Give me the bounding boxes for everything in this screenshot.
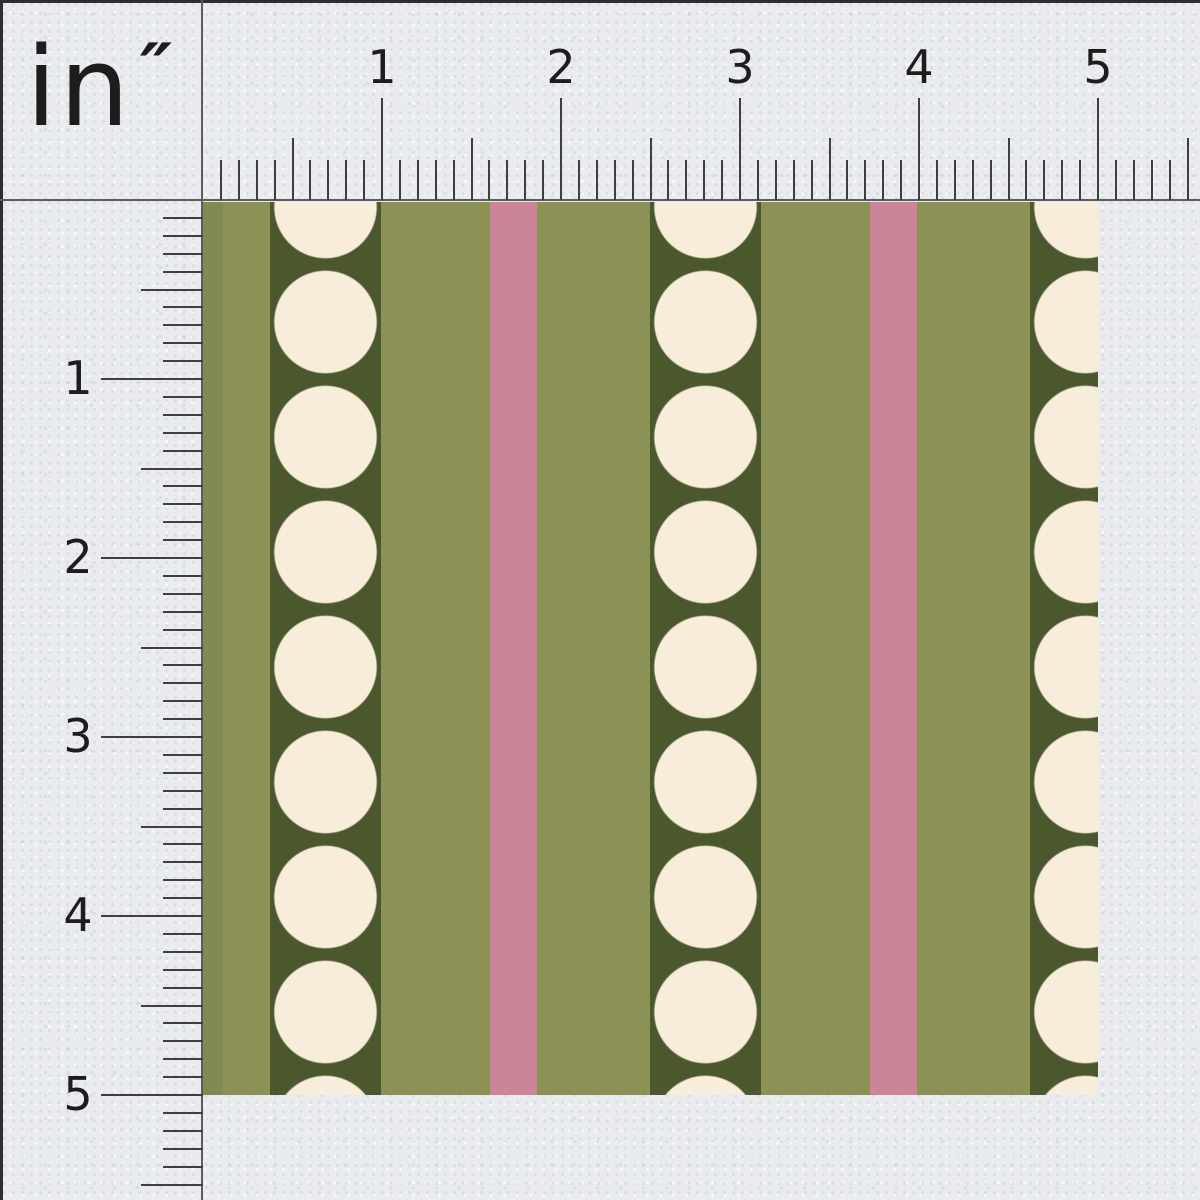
left-ruler-tick [163,414,203,416]
left-ruler-tick [163,1076,203,1078]
left-ruler-tick [101,378,203,380]
left-ruler-tick [163,503,203,505]
left-ruler-tick [163,772,203,774]
left-ruler-tick [163,539,203,541]
top-ruler-tick [1151,160,1153,200]
top-ruler-tick [1169,160,1171,200]
left-ruler-tick [141,1184,203,1186]
top-ruler-tick [918,98,920,200]
top-ruler-number: 5 [1083,44,1112,90]
left-ruler-tick [163,1148,203,1150]
top-ruler-tick [471,138,473,200]
top-ruler-tick [220,160,222,200]
left-ruler-tick [163,700,203,702]
left-ruler-number: 2 [56,534,100,580]
left-ruler-tick [163,897,203,899]
top-ruler-tick [1079,160,1081,200]
top-ruler-tick [882,160,884,200]
left-ruler-tick [163,1166,203,1168]
top-ruler-tick [846,160,848,200]
top-ruler-tick [524,160,526,200]
left-ruler-tick [163,808,203,810]
top-ruler-number: 4 [904,44,933,90]
top-ruler-tick [811,160,813,200]
left-ruler-tick [163,718,203,720]
left-ruler-tick [163,521,203,523]
left-ruler-tick [101,736,203,738]
left-ruler-tick [163,253,203,255]
left-ruler-tick [163,1022,203,1024]
top-ruler-tick [650,138,652,200]
left-ruler-tick [141,826,203,828]
top-ruler-tick [1133,160,1135,200]
top-ruler-tick [864,160,866,200]
top-ruler-tick [292,138,294,200]
left-ruler-number: 5 [56,1071,100,1117]
left-ruler-tick [163,790,203,792]
top-ruler-tick [560,98,562,200]
left-ruler-tick [163,754,203,756]
left-ruler-tick [141,289,203,291]
top-ruler-tick [578,160,580,200]
left-ruler-number: 3 [56,713,100,759]
left-ruler-tick [101,557,203,559]
top-ruler-tick [757,160,759,200]
left-ruler-tick [163,951,203,953]
top-ruler-tick [274,160,276,200]
left-ruler-tick [163,1130,203,1132]
frame-top-edge [0,0,1200,3]
left-ruler-tick [163,575,203,577]
left-ruler-tick [141,647,203,649]
left-ruler-tick [163,629,203,631]
top-ruler-tick [614,160,616,200]
left-ruler-tick [163,396,203,398]
top-ruler-tick [381,98,383,200]
left-ruler-tick [141,468,203,470]
top-ruler-tick [327,160,329,200]
left-ruler-tick [163,485,203,487]
top-ruler-tick [1008,138,1010,200]
top-ruler-tick [596,160,598,200]
left-ruler-tick [163,1058,203,1060]
top-ruler-baseline [0,199,1200,201]
top-ruler-tick [399,160,401,200]
left-ruler-tick [163,593,203,595]
left-ruler-tick [163,235,203,237]
top-ruler-tick [972,160,974,200]
frame-left-edge [0,0,3,1200]
top-ruler-tick [667,160,669,200]
left-ruler-tick [163,969,203,971]
left-ruler-tick [163,217,203,219]
left-ruler-tick [163,324,203,326]
top-ruler-number: 2 [546,44,575,90]
top-ruler-tick [506,160,508,200]
left-ruler-tick [163,306,203,308]
top-ruler-tick [1025,160,1027,200]
top-ruler-tick [1043,160,1045,200]
top-ruler-tick [238,160,240,200]
top-ruler-tick [936,160,938,200]
top-ruler-tick [345,160,347,200]
fabric-swatch-preview: in ″ 12345 12345 [0,0,1200,1200]
top-ruler-tick [256,160,258,200]
left-ruler-tick [163,1112,203,1114]
top-ruler-tick [829,138,831,200]
top-ruler-tick [488,160,490,200]
left-ruler-number: 1 [56,355,100,401]
left-ruler-tick [163,861,203,863]
left-ruler-tick [163,987,203,989]
top-ruler-number: 1 [367,44,396,90]
top-ruler-tick [775,160,777,200]
top-ruler-tick [990,160,992,200]
top-ruler-tick [453,160,455,200]
left-ruler-tick [163,611,203,613]
left-ruler-tick [163,432,203,434]
inch-mark-icon: ″ [140,34,172,106]
top-ruler-tick [363,160,365,200]
left-ruler-tick [163,879,203,881]
top-ruler-tick [721,160,723,200]
left-ruler-tick [163,360,203,362]
top-ruler-number: 3 [725,44,754,90]
left-ruler-tick [163,664,203,666]
left-ruler-tick [163,682,203,684]
top-ruler-tick [1061,160,1063,200]
top-ruler-tick [739,98,741,200]
left-ruler-tick [163,450,203,452]
top-ruler-tick [1097,98,1099,200]
left-ruler-tick [141,1005,203,1007]
top-ruler-tick [1115,160,1117,200]
left-ruler-tick [163,843,203,845]
left-ruler-tick [163,271,203,273]
left-ruler-tick [101,915,203,917]
top-ruler-tick [309,160,311,200]
left-ruler-number: 4 [56,892,100,938]
top-ruler-tick [1187,138,1189,200]
top-ruler-tick [632,160,634,200]
top-ruler-tick [954,160,956,200]
top-ruler-tick [685,160,687,200]
top-ruler-tick [542,160,544,200]
fabric-swatch [203,202,1098,1095]
top-ruler-tick [417,160,419,200]
left-ruler-tick [101,1094,203,1096]
top-ruler-tick [703,160,705,200]
top-ruler-tick [793,160,795,200]
unit-label: in [26,32,132,142]
left-ruler-tick [163,342,203,344]
top-ruler-tick [435,160,437,200]
left-ruler-tick [163,933,203,935]
left-ruler-tick [163,1040,203,1042]
top-ruler-tick [900,160,902,200]
